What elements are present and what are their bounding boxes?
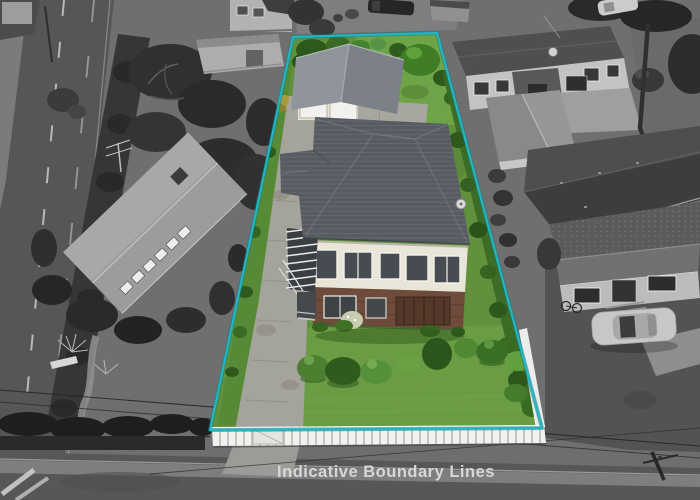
satellite-dish: [456, 199, 466, 209]
shed-top-right: [430, 0, 470, 22]
garage-door-right: [566, 76, 587, 91]
garage: [291, 44, 404, 120]
lower-storey: [309, 287, 465, 330]
upper-storey: [304, 240, 469, 292]
aerial-photo: Indicative Boundary Lines: [0, 0, 700, 500]
main-house: [279, 117, 470, 344]
parked-car-light: [591, 307, 677, 346]
aerial-photo-canvas: Indicative Boundary Lines: [0, 0, 700, 500]
caption-text: Indicative Boundary Lines: [277, 463, 495, 481]
entry-steps: [297, 292, 316, 320]
satellite-dish-right: [549, 48, 558, 57]
